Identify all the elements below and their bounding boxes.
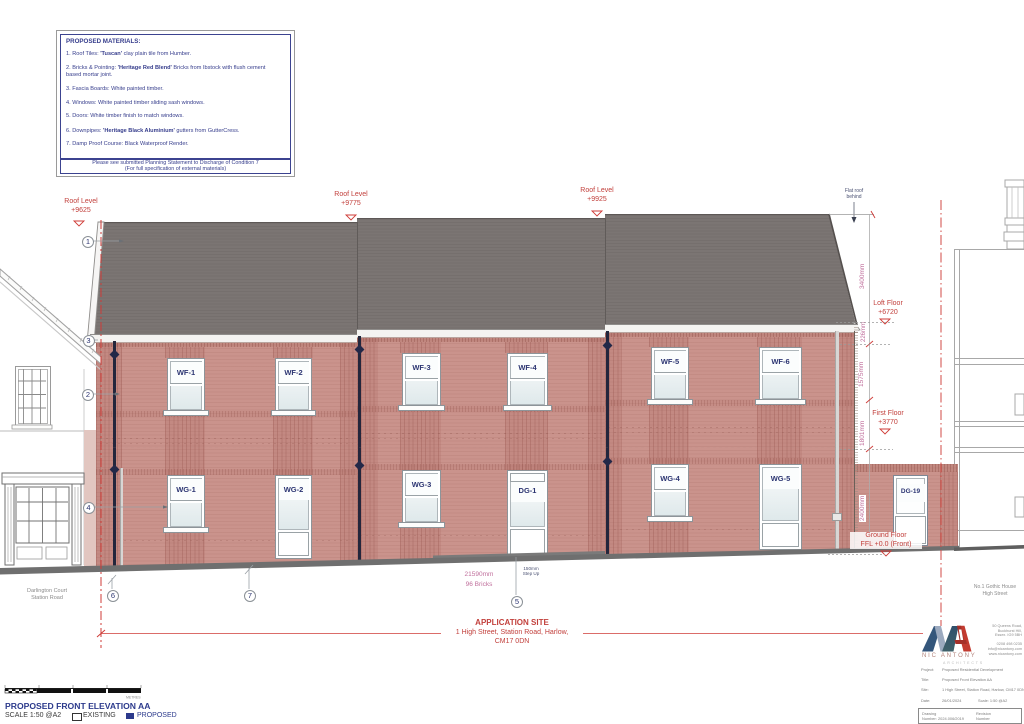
- svg-text:METRES: METRES: [126, 696, 141, 700]
